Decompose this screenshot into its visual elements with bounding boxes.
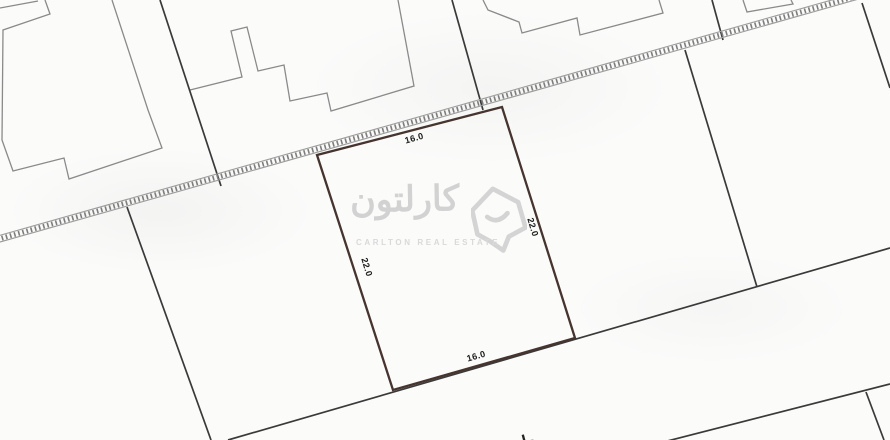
road-hatch-top-edge — [0, 0, 890, 237]
plots-bottom-boundary — [228, 248, 890, 440]
building-outline-top-right — [743, 0, 793, 12]
far-road-side-line — [866, 392, 884, 440]
building-outline-top — [483, 0, 663, 35]
dimension-label-left: 22.0 — [359, 257, 374, 278]
lower-plot-boundary-right — [685, 50, 757, 287]
building-outline-far-left-roof — [0, 1, 38, 8]
road-name-label: طريق — [490, 430, 538, 440]
highlighted-plot-outline — [317, 107, 575, 390]
far-road-edge-line — [640, 384, 890, 440]
lower-plot-boundary-far-right — [862, 3, 890, 88]
upper-plot-boundary-left — [160, 0, 221, 186]
plot-map-drawing: 16.0 16.0 22.0 22.0 طريق — [0, 0, 890, 440]
lower-plot-boundary-left — [127, 207, 211, 440]
upper-plot-boundary-middle — [452, 0, 483, 110]
site-plan-map: 16.0 16.0 22.0 22.0 طريق كارلتون CARLTON… — [0, 0, 890, 440]
dimension-label-top: 16.0 — [404, 131, 425, 146]
dimension-label-bottom: 16.0 — [466, 349, 487, 364]
building-outline-left — [2, 0, 162, 179]
building-outline-middle — [190, 0, 414, 111]
